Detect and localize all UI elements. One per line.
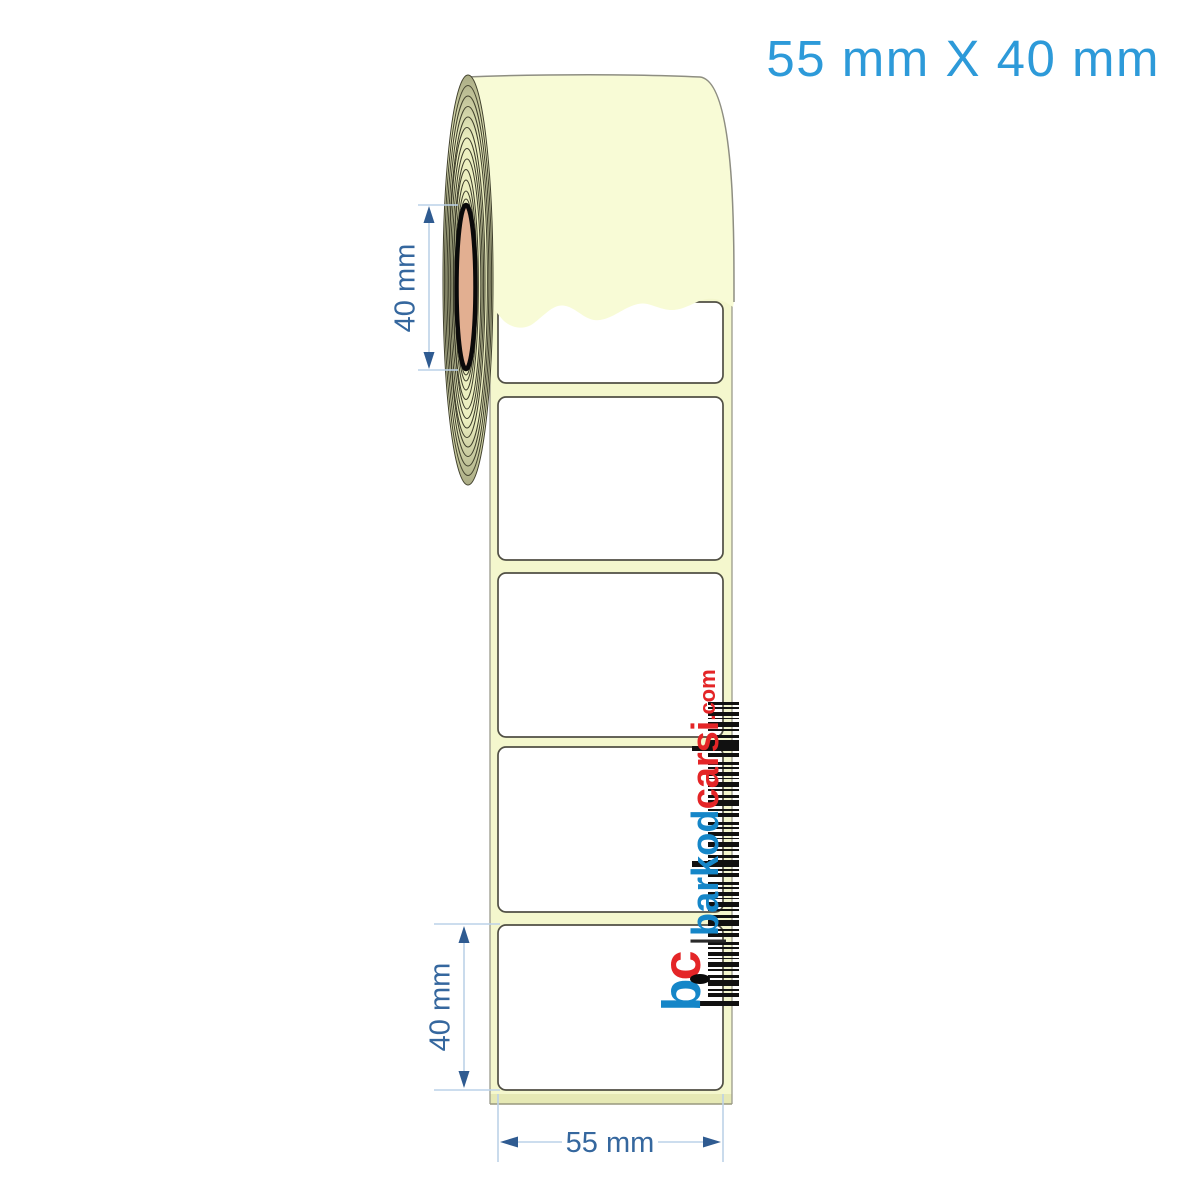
roll-body	[466, 75, 734, 328]
arrow-down-icon	[459, 1071, 470, 1088]
label-height-label: 40 mm	[425, 963, 457, 1052]
arrow-left-icon	[500, 1137, 518, 1148]
roll-core	[457, 205, 476, 369]
label-width-label: 55 mm	[566, 1127, 655, 1159]
blank-label-3	[498, 573, 723, 737]
product-image: 40 mm 40 mm 55 mm bc |barkodcarsi.com	[0, 0, 1200, 1200]
strip-bottom-shade	[490, 1094, 732, 1104]
monogram-dot-icon	[690, 974, 710, 984]
arrow-down-icon	[424, 352, 435, 369]
size-title: 55 mm X 40 mm	[766, 30, 1160, 87]
label-roll-illustration: 40 mm 40 mm 55 mm bc |barkodcarsi.com	[0, 0, 1200, 1200]
arrow-up-icon	[424, 206, 435, 223]
label-height-dimension: 40 mm	[425, 924, 500, 1090]
arrow-right-icon	[703, 1137, 721, 1148]
blank-label-2	[498, 397, 723, 560]
core-height-label: 40 mm	[390, 244, 422, 333]
arrow-up-icon	[459, 926, 470, 943]
